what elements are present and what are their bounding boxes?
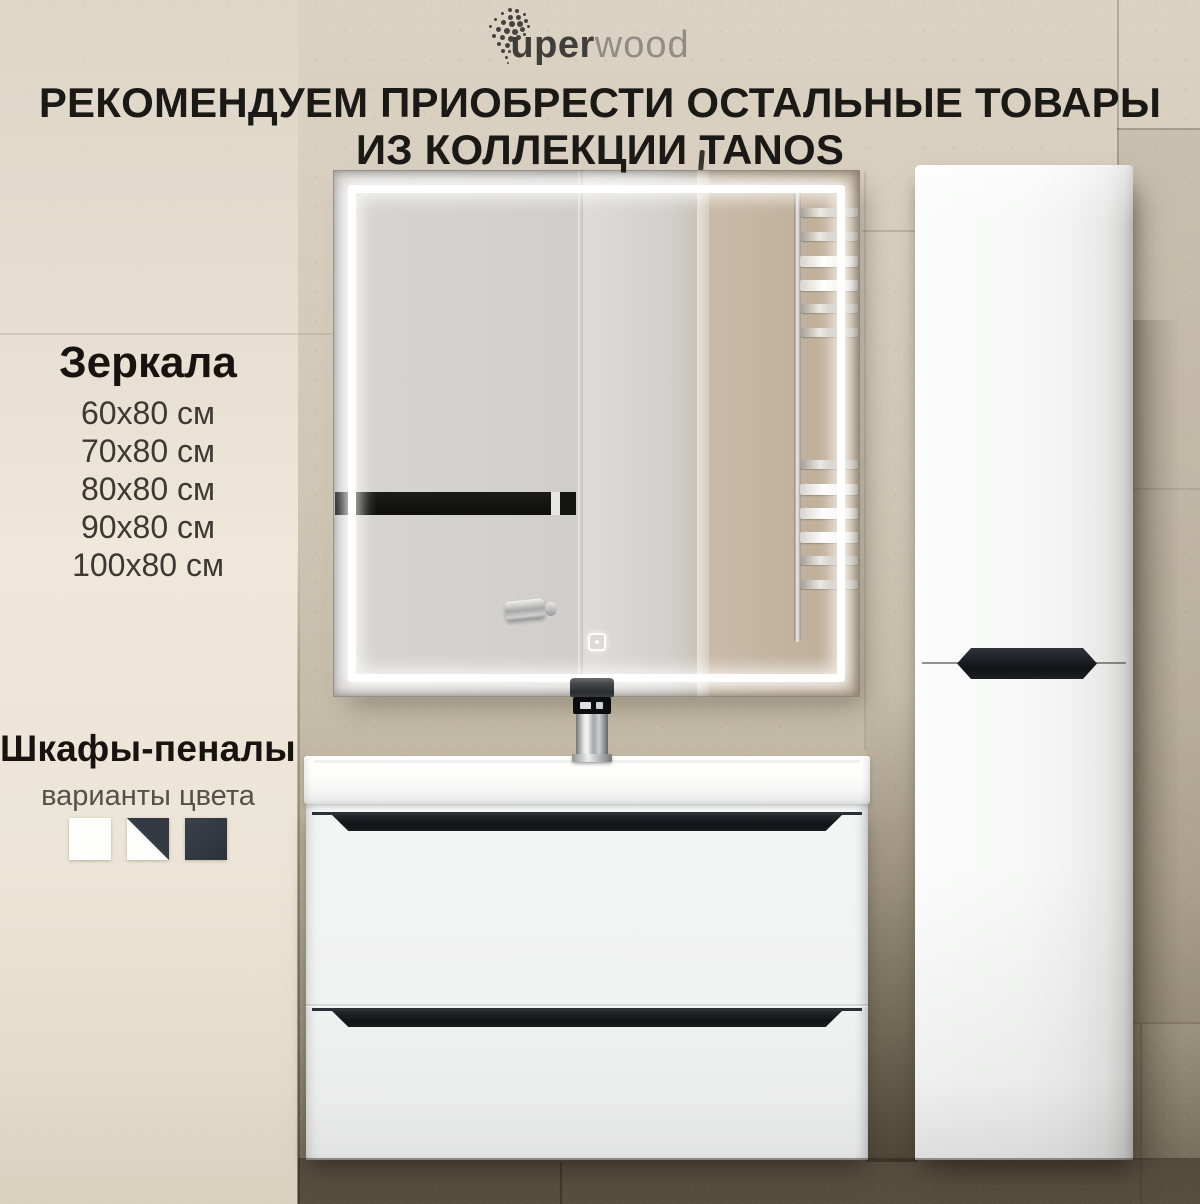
drawer-top-handle-line [312,812,862,815]
faucet-base [572,754,612,762]
cabinet-door-seam [922,662,958,664]
floor-shadow [298,1158,1200,1204]
wall-grout-line [864,172,866,750]
drawer-gap [306,1004,868,1006]
color-swatch-white-graphite [127,818,169,860]
color-swatches [0,818,296,860]
tall-pencil-cabinet [915,165,1133,1160]
drawer-bottom-handle [332,1011,842,1027]
shadow-between-furniture [866,690,917,1162]
logo-text-light: wood [595,24,690,66]
vanity-cabinet [306,804,868,1160]
cabinets-section-title: Шкафы-пеналы [0,728,296,770]
drawer-bottom-handle-line [312,1008,862,1011]
mirror-sizes-list: 60х80 см 70х80 см 80х80 см 90х80 см 100х… [0,394,296,584]
led-mirror [333,170,860,697]
faucet-temperature-display [573,697,611,714]
smart-faucet [568,678,616,764]
color-swatch-white [69,818,111,860]
mirror-size-item: 90х80 см [0,508,296,546]
drawer-top-handle [332,815,842,831]
mirror-size-item: 70х80 см [0,432,296,470]
wall-grout-line [862,230,917,232]
cabinets-section-subtitle: варианты цвета [0,780,296,813]
promo-page: uperwood РЕКОМЕНДУЕМ ПРИОБРЕСТИ ОСТАЛЬНЫ… [0,0,1200,1204]
mirror-size-item: 60х80 см [0,394,296,432]
mirror-size-item: 80х80 см [0,470,296,508]
cabinet-wall-shadow [1131,320,1193,1160]
wall-grout-line [560,1162,562,1204]
logo-text: uperwood [510,24,689,66]
mirror-size-item: 100х80 см [0,546,296,584]
mirror-glass-edge [333,170,860,697]
cabinet-recessed-handle [957,648,1097,679]
left-info-column: Зеркала 60х80 см 70х80 см 80х80 см 90х80… [0,0,296,1204]
color-swatch-graphite [185,818,227,860]
cabinet-door-seam [1096,662,1126,664]
mirrors-section-title: Зеркала [0,338,296,388]
faucet-handle [570,678,614,697]
faucet-body [576,714,608,756]
wall-corner-edge [297,540,300,1204]
logo-text-bold: uper [510,24,594,66]
